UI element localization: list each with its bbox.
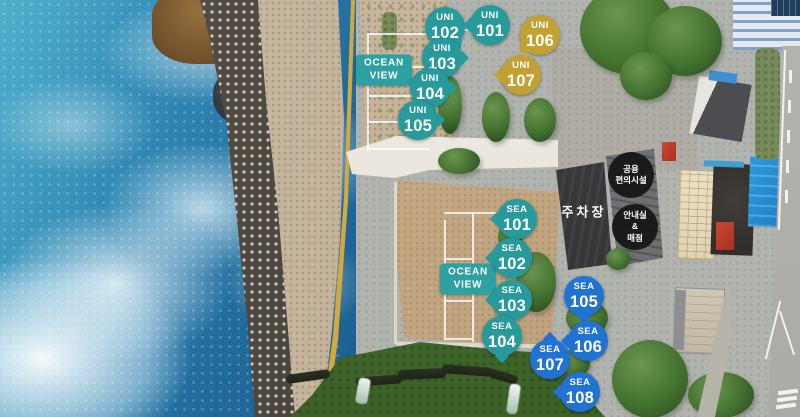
site-marker-sea-107: SEA107 bbox=[530, 339, 570, 379]
parking-label: 주차장 bbox=[562, 202, 607, 221]
shared-facilities-badge: 공용 편의시설 bbox=[608, 152, 654, 198]
bushes bbox=[482, 92, 510, 142]
marker-number-label: 106 bbox=[574, 339, 602, 356]
tree-cluster bbox=[620, 52, 672, 100]
site-marker-sea-101: SEA101 bbox=[497, 199, 537, 239]
marker-group-label: SEA bbox=[506, 205, 527, 215]
stream bbox=[398, 368, 446, 380]
marker-group-label: UNI bbox=[433, 44, 451, 54]
red-container bbox=[716, 222, 734, 250]
site-marker-uni-106: UNI106 bbox=[520, 15, 560, 55]
marker-number-label: 101 bbox=[476, 23, 504, 40]
badge-line: & bbox=[632, 221, 638, 232]
solar-panels bbox=[771, 0, 800, 16]
marker-group-label: UNI bbox=[409, 106, 427, 116]
marker-group-label: SEA bbox=[501, 286, 522, 296]
marker-group-label: UNI bbox=[531, 21, 549, 31]
marker-group-label: SEA bbox=[539, 345, 560, 355]
plot-line bbox=[444, 300, 472, 302]
lot-curb bbox=[394, 182, 397, 344]
plot-line bbox=[367, 33, 369, 151]
tree-cluster bbox=[612, 340, 688, 417]
building-wall bbox=[673, 290, 686, 350]
marker-number-label: 106 bbox=[526, 33, 554, 50]
marker-group-label: SEA bbox=[577, 327, 598, 337]
tree bbox=[606, 248, 630, 270]
campsite-aerial-map: 주차장 공용 편의시설 안내실 & 매점 OCEAN VIEW OCEAN VI… bbox=[0, 0, 800, 417]
marker-number-label: 104 bbox=[488, 334, 516, 351]
marker-number-label: 102 bbox=[498, 256, 526, 273]
site-marker-sea-106: SEA106 bbox=[568, 321, 608, 361]
grass-patch bbox=[382, 12, 397, 50]
ocean-view-line: OCEAN bbox=[364, 58, 404, 69]
site-marker-sea-104: SEA104 bbox=[482, 316, 522, 356]
marker-group-label: SEA bbox=[491, 322, 512, 332]
plot-line bbox=[367, 148, 429, 150]
marker-number-label: 105 bbox=[404, 118, 432, 135]
marker-group-label: UNI bbox=[421, 74, 439, 84]
badge-line: 공용 bbox=[623, 164, 639, 175]
ocean-view-label-upper: OCEAN VIEW bbox=[356, 55, 412, 86]
marker-group-label: SEA bbox=[501, 244, 522, 254]
marker-group-label: UNI bbox=[512, 61, 530, 71]
ocean-view-line: OCEAN bbox=[448, 267, 488, 278]
lane-dash bbox=[789, 70, 792, 83]
ocean-view-line: VIEW bbox=[454, 279, 483, 290]
marker-number-label: 107 bbox=[536, 357, 564, 374]
marker-group-label: UNI bbox=[481, 11, 499, 21]
ocean-view-line: VIEW bbox=[370, 70, 399, 81]
plot-line bbox=[444, 258, 472, 260]
marker-group-label: UNI bbox=[436, 13, 454, 23]
site-marker-sea-108: SEA108 bbox=[560, 372, 600, 412]
red-shed-roof bbox=[662, 142, 676, 161]
marker-number-label: 103 bbox=[498, 298, 526, 315]
plot-line bbox=[444, 212, 498, 214]
site-marker-sea-103: SEA103 bbox=[492, 280, 532, 320]
bushes bbox=[524, 98, 556, 142]
badge-line: 매점 bbox=[627, 233, 643, 244]
bushes bbox=[438, 148, 480, 174]
grass-strip bbox=[755, 48, 780, 160]
site-marker-uni-107: UNI107 bbox=[501, 55, 541, 95]
badge-line: 편의시설 bbox=[615, 175, 646, 186]
lane-dash bbox=[786, 160, 789, 173]
info-store-badge: 안내실 & 매점 bbox=[612, 204, 658, 250]
lane-dash bbox=[787, 130, 790, 143]
marker-number-label: 105 bbox=[570, 294, 598, 311]
ocean-view-label-lower: OCEAN VIEW bbox=[440, 264, 496, 295]
marker-group-label: SEA bbox=[573, 282, 594, 292]
badge-line: 안내실 bbox=[623, 210, 646, 221]
site-marker-uni-101: UNI101 bbox=[470, 5, 510, 45]
marker-group-label: SEA bbox=[569, 378, 590, 388]
plot-line bbox=[444, 338, 472, 340]
site-marker-uni-105: UNI105 bbox=[398, 100, 438, 140]
site-marker-sea-102: SEA102 bbox=[492, 238, 532, 278]
lane-dash bbox=[788, 100, 791, 113]
marker-number-label: 107 bbox=[507, 73, 535, 90]
marker-number-label: 101 bbox=[503, 217, 531, 234]
site-marker-sea-105: SEA105 bbox=[564, 276, 604, 316]
gabled-roof-building bbox=[689, 76, 751, 142]
lane-dash bbox=[785, 190, 788, 203]
marker-number-label: 108 bbox=[566, 390, 594, 407]
